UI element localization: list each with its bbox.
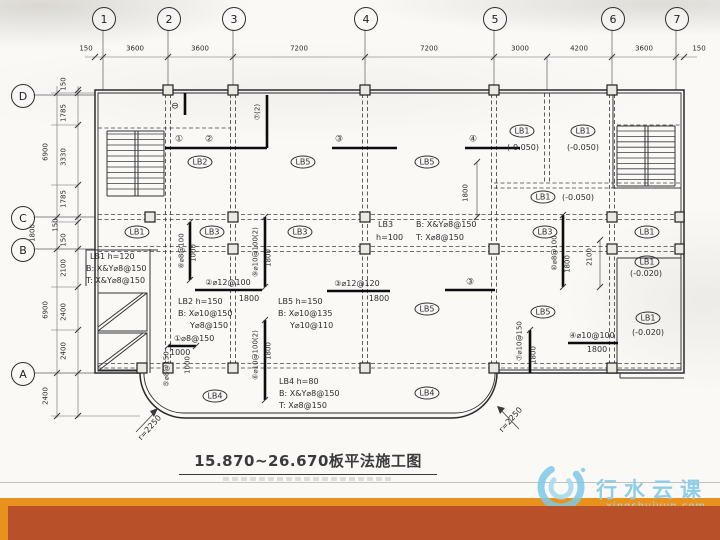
- slab-note: LB4 h=80: [279, 378, 319, 386]
- rebar-label: ④⌀10@100: [569, 332, 614, 340]
- dim-label: 4200: [570, 46, 588, 53]
- dim-label: 3600: [191, 46, 209, 53]
- slab-label: LB4: [414, 387, 439, 400]
- slab-label: LB5: [414, 156, 439, 169]
- slab-note: h=100: [376, 234, 403, 242]
- axis-bubble-3: 3: [222, 7, 246, 31]
- dim-label: 6900: [43, 143, 50, 161]
- rebar-mark: ④: [469, 136, 477, 145]
- dim-label: 3600: [635, 46, 653, 53]
- slab-label: LB3: [199, 226, 224, 239]
- dim-label: 3600: [126, 46, 144, 53]
- dim-label: 7200: [420, 46, 438, 53]
- dim-label: 2400: [61, 303, 68, 321]
- rebar-label: ⑥⌀10@100(2): [253, 330, 260, 380]
- section-mark: ⊖: [171, 103, 179, 112]
- elevation-label: (-0.050): [562, 194, 594, 202]
- slab-label: LB2: [187, 156, 212, 169]
- dim-label: 150: [79, 46, 92, 53]
- slab-label: LB1: [530, 191, 555, 204]
- slab-note: B: X⌀10@150: [178, 310, 232, 318]
- slab-note: T: X&Y⌀8@150: [86, 277, 145, 285]
- title-block: 15.870~26.670板平法施工图: [170, 450, 446, 481]
- radius-label: r=2250: [137, 414, 163, 442]
- dim-label: 150: [53, 218, 60, 231]
- slab-label: LB3: [287, 226, 312, 239]
- slab-label: LB5: [530, 306, 555, 319]
- dim-label: 2400: [61, 342, 68, 360]
- dim-label: 2100: [61, 259, 68, 277]
- axis-bubble-4: 4: [354, 7, 378, 31]
- dim-label: 1785: [61, 104, 68, 122]
- dim-label: 1800: [531, 346, 538, 364]
- dim-label: 2100: [587, 248, 594, 266]
- dim-label: 6900: [43, 301, 50, 319]
- dim-label: 7200: [290, 46, 308, 53]
- slab-label: LB1: [570, 125, 595, 138]
- rebar-mark: ③: [335, 136, 343, 145]
- rebar-label: ③⌀12@120: [334, 280, 379, 288]
- slab-label: LB4: [202, 390, 227, 403]
- drawing-title: 15.870~26.670板平法施工图: [170, 450, 446, 471]
- slab-note: T: X⌀8@150: [416, 234, 464, 242]
- dim-label: 1800: [587, 346, 607, 354]
- slab-note: T: X⌀8@150: [279, 402, 327, 410]
- slab-note: LB5 h=150: [278, 298, 323, 306]
- slab-label: LB1: [124, 226, 149, 239]
- slab-label: LB1: [635, 312, 660, 325]
- axis-bubble-D: D: [11, 84, 35, 108]
- slab-note: B: X&Y⌀8@150: [416, 221, 477, 229]
- axis-bubble-C: C: [11, 206, 35, 230]
- axis-bubble-1: 1: [92, 7, 116, 31]
- axis-bubble-2: 2: [157, 7, 181, 31]
- axis-bubble-A: A: [11, 362, 35, 386]
- dim-label: 1800: [239, 295, 259, 303]
- dim-label: 3000: [511, 46, 529, 53]
- dim-label: 1800: [266, 249, 273, 267]
- dim-label: 150: [61, 233, 68, 246]
- rebar-mark: ③: [466, 279, 474, 288]
- dim-label: 1800: [369, 295, 389, 303]
- rebar-label: ⑩⌀8@100: [552, 235, 559, 270]
- axis-bubble-6: 6: [601, 7, 625, 31]
- dim-label: 150: [61, 77, 68, 90]
- dim-label: 1785: [61, 190, 68, 208]
- slide-footer-bar: [8, 506, 720, 540]
- slab-note: B: X⌀10@135: [278, 310, 332, 318]
- rebar-mark: ①: [175, 136, 183, 145]
- dim-label: 1800: [463, 184, 470, 202]
- rebar-label: ⑦⌀10@150: [517, 321, 524, 361]
- slab-label: LB5: [290, 156, 315, 169]
- slab-note: Y⌀8@150: [190, 322, 228, 330]
- elevation-label: (-0.020): [630, 270, 662, 278]
- dim-label: 2400: [43, 387, 50, 405]
- slab-label: LB1: [509, 125, 534, 138]
- rebar-label: ⑨⌀10@100(2): [253, 227, 260, 277]
- rebar-mark: ②: [205, 136, 213, 145]
- rebar-label: ①⌀8@150: [174, 335, 214, 343]
- dim-label: 1000: [191, 244, 198, 262]
- rebar-label: ②⌀12@100: [205, 279, 250, 287]
- slab-note: LB1 h=120: [90, 253, 135, 261]
- dim-label: 1800: [266, 342, 273, 360]
- slab-label: LB1: [634, 226, 659, 239]
- elevation-label: (-0.020): [632, 329, 664, 337]
- dim-label: 1000: [185, 356, 192, 374]
- slab-note: B: X&Y⌀8@150: [279, 390, 340, 398]
- dim-label: 150: [692, 46, 705, 53]
- axis-bubble-5: 5: [483, 7, 507, 31]
- elevation-label: (-0.050): [507, 144, 539, 152]
- slab-note: LB2 h=150: [178, 298, 223, 306]
- rebar-label: ⑧⌀8@100: [179, 233, 186, 268]
- elevation-label: (-0.050): [567, 144, 599, 152]
- slab-note: Y⌀10@110: [290, 322, 333, 330]
- slab-label: LB5: [414, 303, 439, 316]
- rebar-label: ⑤⌀8@150: [164, 351, 171, 386]
- axis-bubble-B: B: [11, 238, 35, 262]
- dim-label: 1800: [565, 255, 572, 273]
- rebar-label: ⑦(2): [255, 104, 262, 120]
- watermark-name: 行水云课: [596, 474, 708, 504]
- slab-note: LB3: [378, 221, 393, 229]
- axis-bubble-7: 7: [665, 7, 689, 31]
- slide: 1503600360072007200300042003600150150178…: [0, 0, 720, 540]
- radius-label: r=2250: [498, 406, 524, 434]
- slab-label: LB1: [634, 256, 659, 269]
- dim-label: 3330: [61, 148, 68, 166]
- title-subtext-faint: [223, 477, 393, 481]
- title-underline: [179, 474, 437, 475]
- slab-note: B: X&Y⌀8@150: [86, 265, 147, 273]
